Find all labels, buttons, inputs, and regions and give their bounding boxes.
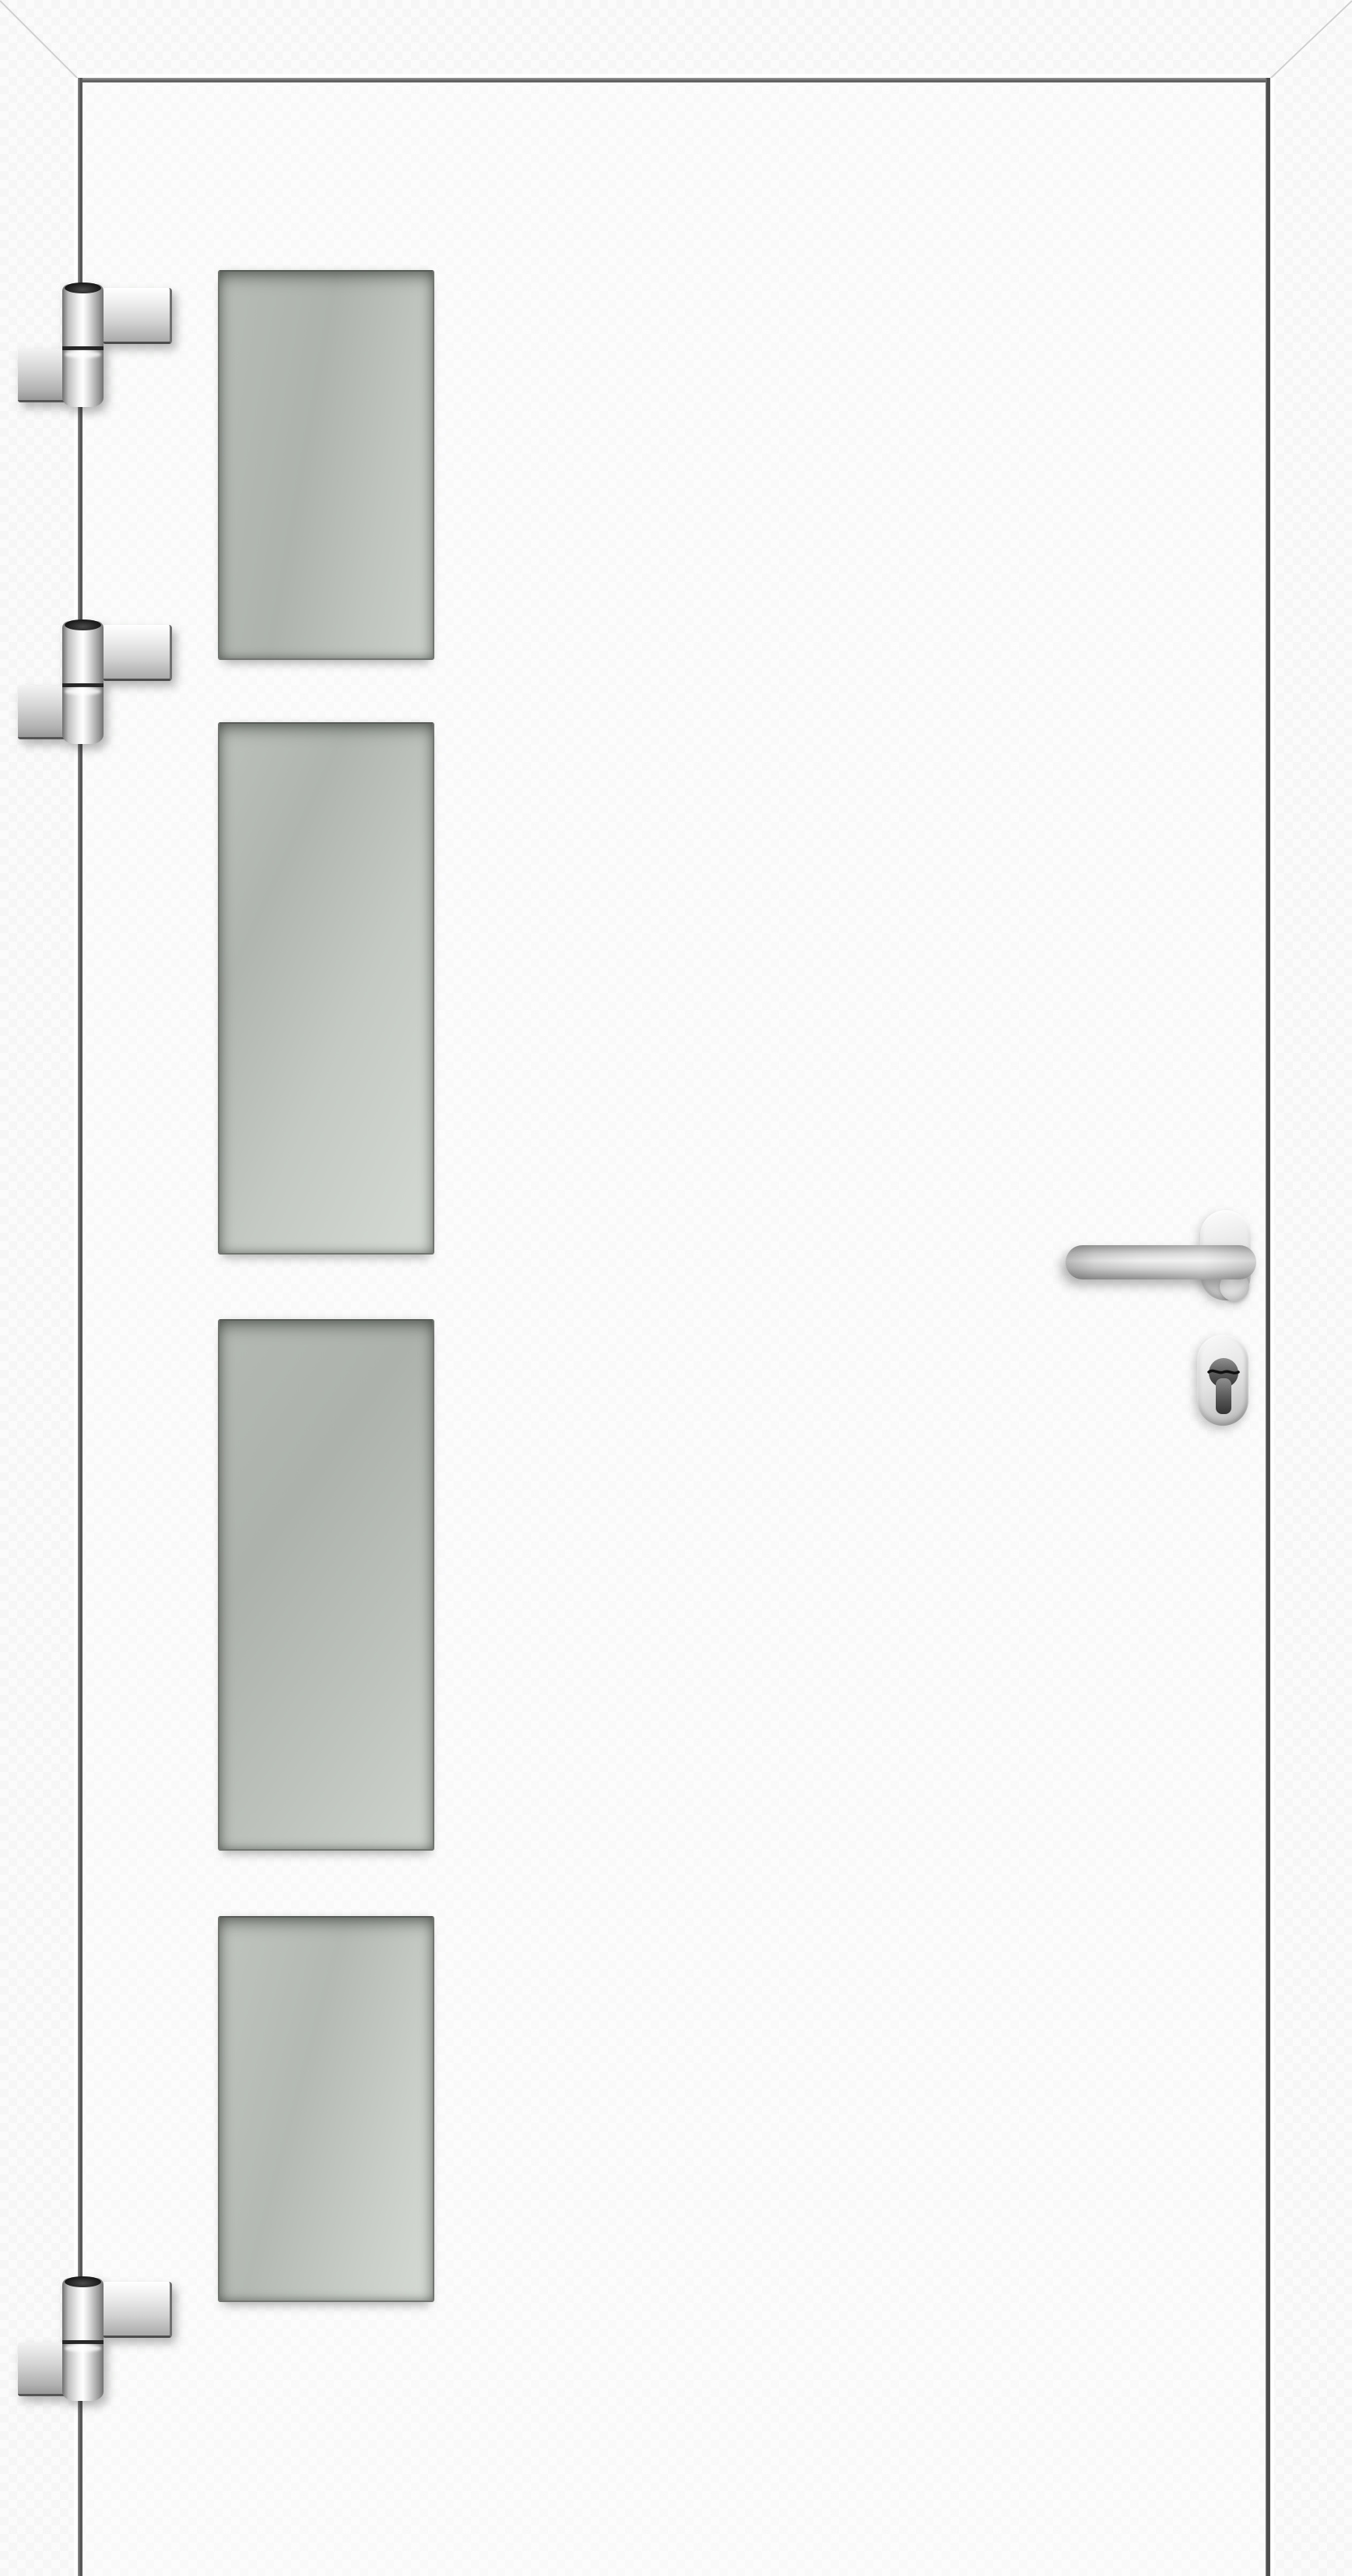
door-hinge <box>18 284 172 407</box>
glass-panel <box>218 1916 434 2302</box>
hinge-door-wing <box>104 625 172 681</box>
hinge-barrel-highlight <box>65 688 101 695</box>
frame-door-gap-top <box>78 78 1270 82</box>
glass-panel <box>218 270 434 660</box>
hinge-door-wing <box>104 2282 172 2338</box>
hinge-frame-wing <box>18 349 64 402</box>
hinge-barrel-highlight <box>65 351 101 358</box>
hinge-barrel <box>62 621 104 744</box>
frame-door-gap-right <box>1266 78 1270 2576</box>
frame-door-gap-left <box>78 78 83 2576</box>
hinge-barrel <box>62 284 104 407</box>
glass-panel <box>218 1319 434 1851</box>
hinge-frame-wing <box>18 2343 64 2396</box>
hinge-pin-opening <box>65 283 101 293</box>
lock-cylinder-escutcheon <box>1197 1335 1248 1426</box>
hinge-barrel-split <box>62 683 104 687</box>
frame-miter-joint-top-right <box>1269 0 1352 79</box>
hinge-barrel <box>62 2278 104 2401</box>
hinge-barrel-split <box>62 2340 104 2344</box>
door-hinge <box>18 2278 172 2401</box>
door-handle-lever <box>1066 1245 1256 1279</box>
hinge-frame-wing <box>18 686 64 739</box>
hinge-door-wing <box>104 288 172 344</box>
door-hinge <box>18 621 172 744</box>
door-product-photo <box>0 0 1352 2576</box>
hinge-barrel-split <box>62 346 104 350</box>
hinge-pin-opening <box>65 2276 101 2287</box>
hinge-barrel-highlight <box>65 2345 101 2352</box>
keyhole-icon <box>1197 1335 1248 1426</box>
frame-miter-joint-top-left <box>0 0 79 79</box>
hinge-pin-opening <box>65 619 101 630</box>
glass-panel <box>218 722 434 1255</box>
